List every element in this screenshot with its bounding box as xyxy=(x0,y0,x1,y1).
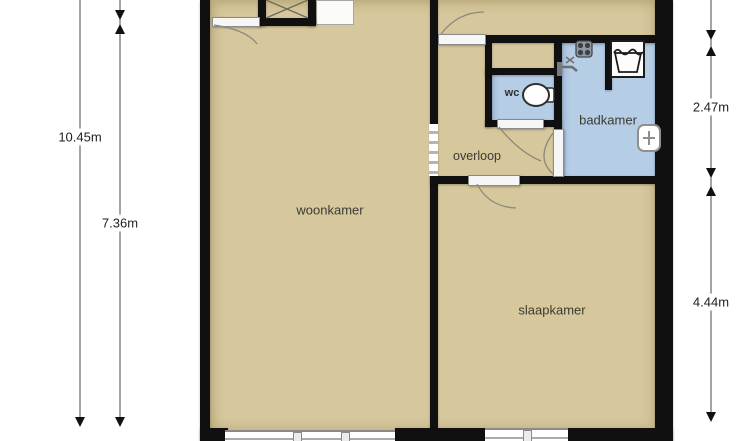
window-glass-line xyxy=(225,438,395,440)
room-label-wc: wc xyxy=(505,87,520,99)
room-label-overloop: overloop xyxy=(453,149,501,163)
room-label-woonkamer: woonkamer xyxy=(296,203,363,218)
open-passage-marking xyxy=(429,124,438,176)
window-mullion xyxy=(523,430,532,441)
floor-area-wc xyxy=(492,70,554,122)
wall-exterior-bottom-middle xyxy=(395,428,485,441)
room-label-badkamer: badkamer xyxy=(579,113,637,128)
floor-plan-canvas: woonkamer slaapkamer badkamer overloop w… xyxy=(0,0,750,441)
window-bedroom xyxy=(485,428,568,441)
dimension-label-left-living: 7.36m xyxy=(99,215,141,232)
wall-top-closet-bottom xyxy=(258,18,316,26)
wall-exterior-right xyxy=(655,0,673,441)
window-living-room xyxy=(225,430,395,441)
wall-living-bedroom-divider xyxy=(430,0,438,428)
wall-hall-bedroom-divider xyxy=(430,176,655,184)
door-bedroom xyxy=(468,175,520,186)
wall-niche xyxy=(316,0,354,25)
room-label-slaapkamer: slaapkamer xyxy=(518,303,585,318)
dimension-label-left-total: 10.45m xyxy=(55,129,104,146)
dimension-label-right-bathroom: 2.47m xyxy=(690,99,732,116)
wall-exterior-left xyxy=(200,0,210,441)
dimension-label-right-bedroom: 4.44m xyxy=(690,294,732,311)
door-wc xyxy=(497,119,544,129)
window-mullion xyxy=(341,432,350,441)
wall-wc-left xyxy=(485,43,492,127)
door-bathroom xyxy=(553,129,564,177)
wall-exterior-bottom-left xyxy=(200,428,228,441)
wall-exterior-bottom-right xyxy=(568,428,673,441)
window-mullion xyxy=(293,432,302,441)
door-hall-top xyxy=(438,34,486,45)
wall-closet-bottom xyxy=(485,68,562,75)
wall-washer-stub xyxy=(605,43,612,90)
door-top-left xyxy=(212,17,260,27)
